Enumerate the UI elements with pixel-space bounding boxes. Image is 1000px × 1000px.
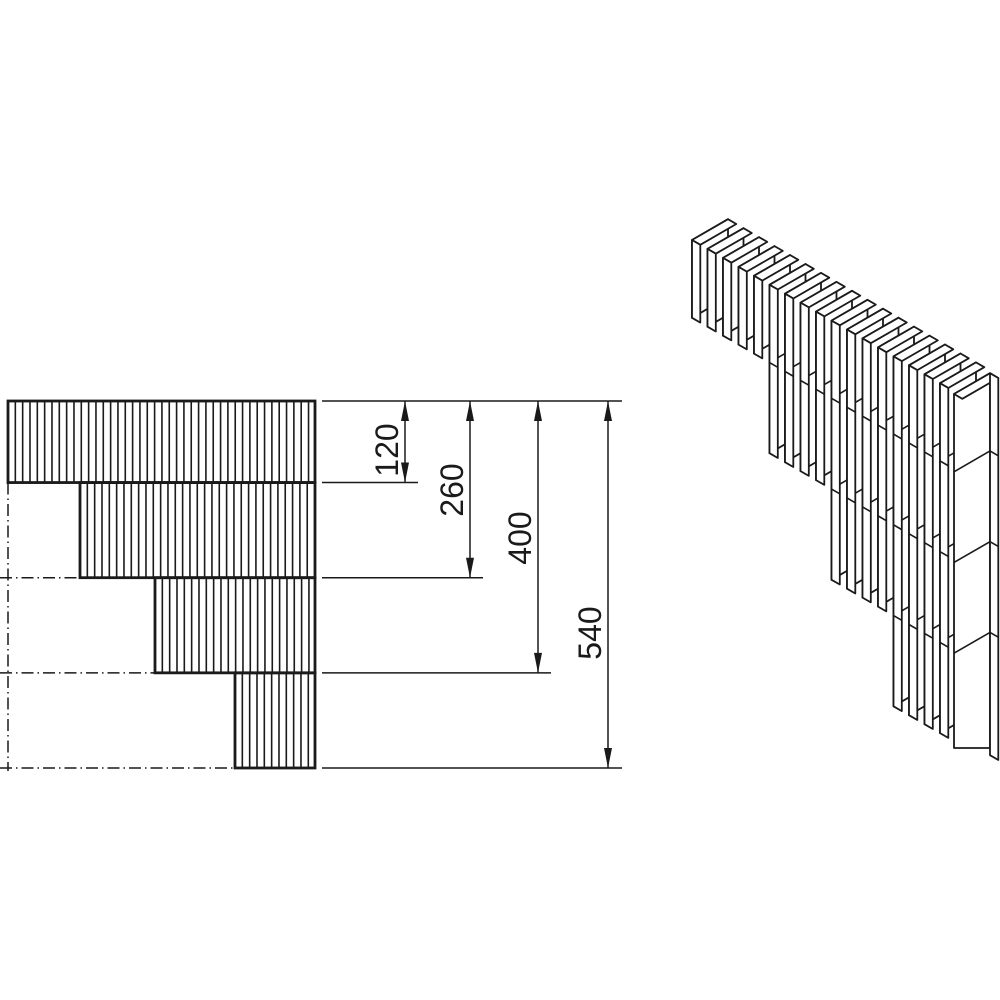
isometric-view (692, 219, 998, 760)
drawing-svg: 120 260 400 540 (0, 0, 1000, 1000)
dimension-label-400: 400 (502, 511, 538, 564)
dimension-label-540: 540 (572, 606, 608, 659)
dimension-label-260: 260 (434, 463, 470, 516)
dimension-labels: 120 260 400 540 (369, 423, 608, 659)
technical-drawing-canvas: 120 260 400 540 (0, 0, 1000, 1000)
dimension-lines (322, 401, 622, 768)
elevation-view (0, 401, 315, 771)
dimension-label-120: 120 (369, 423, 405, 476)
